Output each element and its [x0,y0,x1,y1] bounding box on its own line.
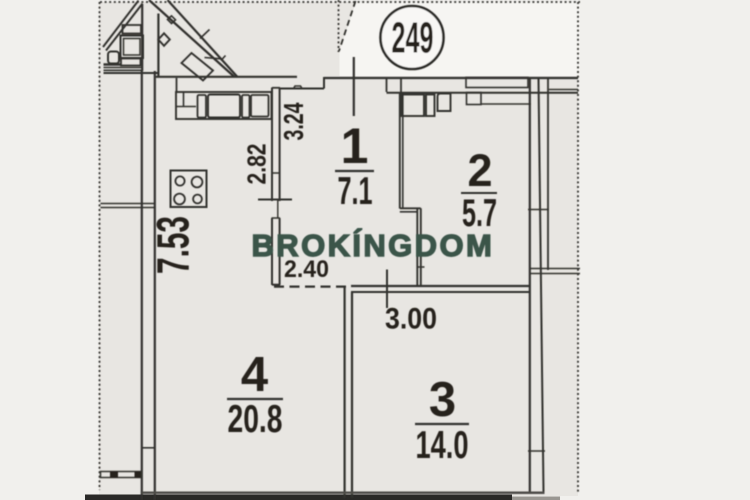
svg-text:249: 249 [392,14,434,62]
svg-text:3.24: 3.24 [278,102,309,140]
svg-text:2.82: 2.82 [241,144,271,185]
svg-text:3: 3 [429,373,456,427]
svg-text:20.8: 20.8 [228,398,283,441]
svg-text:7.53: 7.53 [148,216,199,274]
svg-text:1: 1 [341,118,369,174]
svg-text:14.0: 14.0 [416,424,469,467]
svg-text:4: 4 [241,348,268,402]
svg-text:3.00: 3.00 [385,303,437,336]
svg-text:2: 2 [467,145,492,196]
svg-text:7.1: 7.1 [338,170,373,213]
svg-text:BROKÍNGDOM: BROKÍNGDOM [252,228,495,263]
